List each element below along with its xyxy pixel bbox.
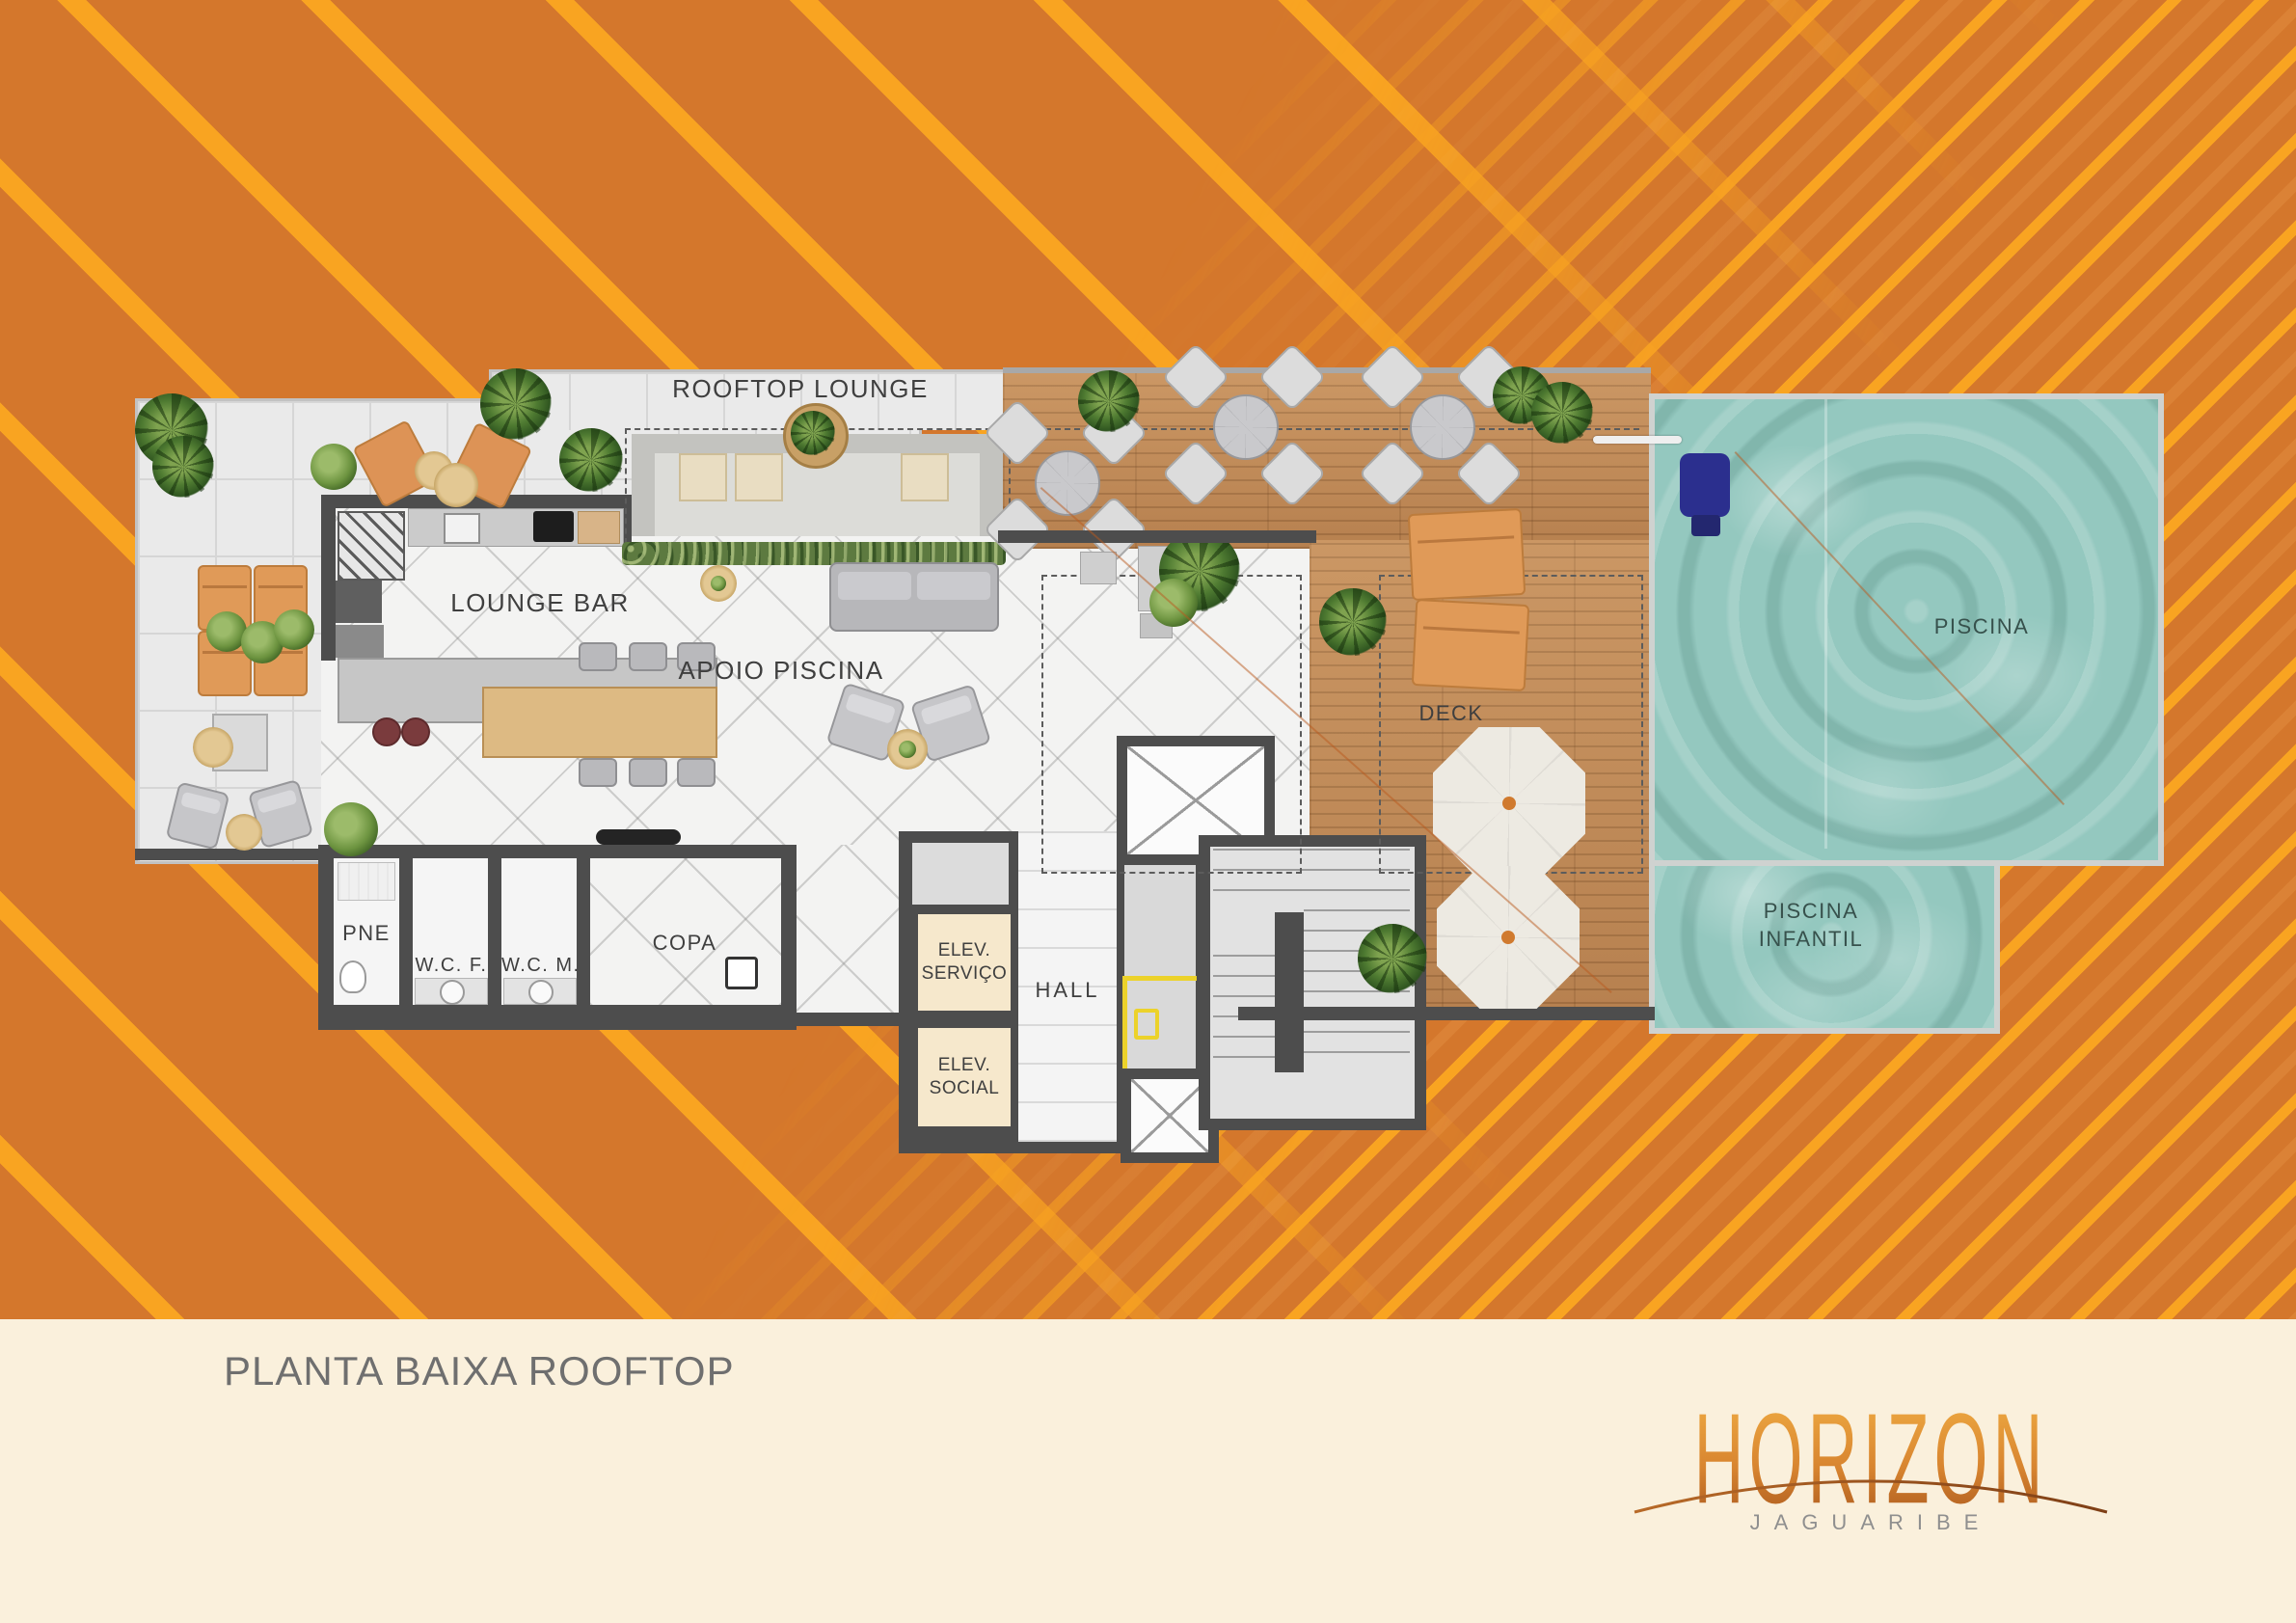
yellow-marking-symbol: [1134, 1009, 1159, 1040]
piscina-infantil-line1: PISCINA: [1764, 899, 1859, 923]
kitchen-left-wall: [321, 495, 336, 661]
deck-step: [1080, 552, 1117, 584]
room-label-wc-m: W.C. M.: [501, 955, 579, 977]
appliance-fridge: [336, 581, 382, 623]
brand-logo: HORIZON JAGUARIBE: [1639, 1387, 2102, 1466]
sofa: [829, 562, 999, 632]
deck-table-set: [1368, 353, 1513, 498]
deck-chair-icon: [984, 399, 1052, 468]
cutting-board: [578, 511, 620, 544]
pool-lift-seat: [1691, 515, 1720, 536]
corridor-floor: [783, 845, 905, 1024]
elevator-servico-shaft: ELEV. SERVIÇO: [918, 914, 1011, 1011]
copa-dark-counter: [596, 829, 681, 845]
piscina-infantil-line2: INFANTIL: [1759, 927, 1864, 951]
terrace-bottom-wall: [135, 849, 328, 860]
barbecue-grill: [338, 511, 405, 581]
room-label-piscina-infantil: PISCINA INFANTIL: [1707, 897, 1915, 953]
room-label-rooftop-lounge: ROOFTOP LOUNGE: [665, 374, 935, 404]
pne-shower: [338, 862, 395, 901]
stairs-center-wall: [1275, 912, 1304, 1072]
room-label-pne: PNE: [328, 921, 405, 946]
copa-appliance: [725, 957, 758, 989]
apoio-deck-wall: [998, 530, 1316, 543]
potted-plant-icon: [899, 741, 916, 758]
corridor-bottom-wall: [777, 1013, 912, 1026]
deck-table-top: [1410, 394, 1475, 460]
brand-logo-subtitle: JAGUARIBE: [1639, 1510, 2102, 1535]
bar-stool: [579, 642, 617, 671]
deck-table-set: [1172, 353, 1316, 498]
bush-icon: [311, 444, 357, 490]
bar-wood-table: [482, 687, 717, 758]
bar-stool: [579, 758, 617, 787]
bar-stool: [629, 758, 667, 787]
room-label-lounge-bar: LOUNGE BAR: [424, 588, 656, 618]
wcf-sink: [440, 980, 465, 1005]
round-rug: [193, 727, 233, 768]
elev-social-label-2: SOCIAL: [930, 1077, 1000, 1100]
elevator-social-shaft: ELEV. SOCIAL: [918, 1028, 1011, 1126]
deck-table-top: [1213, 394, 1279, 460]
bush-icon: [324, 802, 378, 856]
room-label-deck: DECK: [1389, 701, 1514, 726]
elev-social-label-1: ELEV.: [938, 1054, 991, 1077]
room-label-piscina: PISCINA: [1880, 614, 2083, 639]
bench-cushion: [735, 453, 783, 501]
pne-toilet: [339, 960, 366, 993]
room-label-hall: HALL: [1014, 978, 1121, 1003]
deck-chair-icon: [1359, 343, 1427, 412]
palm-plant-icon: [1078, 370, 1140, 432]
planter-bush-icon: [274, 609, 314, 650]
wcm-sink: [528, 980, 554, 1005]
potted-plant-icon: [711, 576, 726, 591]
cooktop: [533, 511, 574, 542]
pool-handrail: [1593, 436, 1682, 444]
deck-chair-icon: [1162, 440, 1230, 508]
bar-stool-red: [372, 717, 401, 746]
bar-stool-red: [401, 717, 430, 746]
elev-servico-label-1: ELEV.: [938, 939, 991, 962]
side-table-round: [434, 463, 478, 507]
deck-chair-icon: [1359, 440, 1427, 508]
bench-cushion: [901, 453, 949, 501]
room-label-wc-f: W.C. F.: [413, 955, 490, 977]
deck-bottom-wall: [1238, 1007, 1655, 1020]
palm-plant-icon: [1358, 924, 1427, 993]
sheet-caption: PLANTA BAIXA ROOFTOP: [224, 1348, 735, 1394]
sun-lounger: [1408, 508, 1526, 601]
bar-stool: [677, 758, 716, 787]
sun-lounger: [1412, 599, 1530, 691]
deck-table-top: [1035, 450, 1100, 516]
pool-lane-seam: [1824, 399, 1827, 849]
room-label-copa: COPA: [632, 931, 738, 956]
appliance-cabinet: [336, 625, 384, 658]
kitchen-sink: [444, 513, 480, 544]
palm-plant-icon: [1531, 382, 1593, 444]
deck-chair-icon: [1258, 343, 1327, 412]
deck-chair-icon: [1162, 343, 1230, 412]
deck-chair-icon: [984, 496, 1052, 564]
bench-cushion: [679, 453, 727, 501]
footer-band: PLANTA BAIXA ROOFTOP HORIZON JAGUARIBE: [0, 1319, 2296, 1623]
elev-servico-label-2: SERVIÇO: [922, 962, 1008, 986]
round-rug: [226, 814, 262, 851]
palm-plant-icon: [480, 368, 552, 440]
palm-plant-icon: [559, 428, 623, 492]
planter-tree-icon: [791, 411, 835, 455]
room-label-apoio-piscina: APOIO PISCINA: [636, 656, 926, 686]
palm-plant-icon: [152, 436, 214, 498]
pool-lift-chair: [1680, 453, 1730, 517]
core-concrete: [912, 843, 1009, 905]
palm-plant-icon: [1319, 588, 1387, 656]
rooftop-floor-plan-sheet: ELEV. SERVIÇO ELEV. SOCIAL: [0, 0, 2296, 1623]
